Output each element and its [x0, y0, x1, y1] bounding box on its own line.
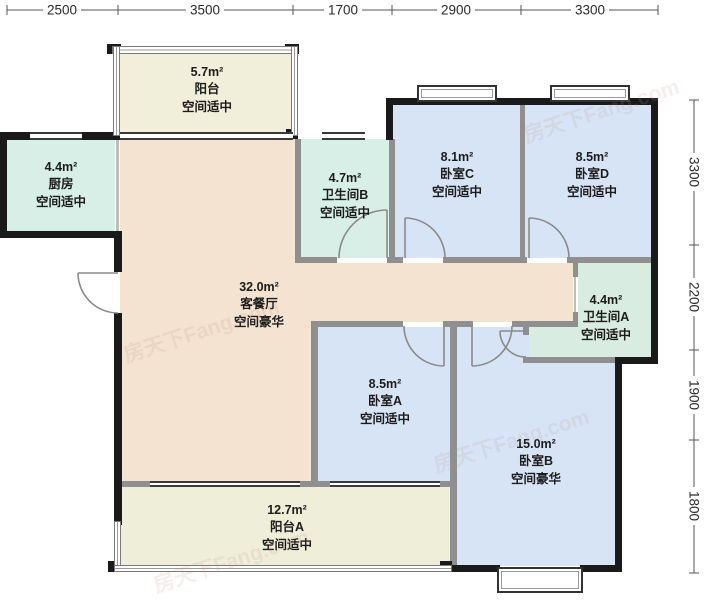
room-label-bedroom-d: 8.5m² 卧室D 空间适中 [567, 149, 617, 201]
room-area: 8.1m² [432, 149, 482, 166]
room-area: 4.7m² [320, 170, 370, 187]
room-quality: 空间适中 [182, 99, 232, 116]
room-name: 客餐厅 [234, 296, 284, 313]
room-quality: 空间豪华 [511, 471, 561, 488]
room-label-bathroom-a: 4.4m² 卫生间A 空间适中 [581, 292, 631, 344]
dimension-label: 2500 [43, 3, 81, 18]
room-quality: 空间适中 [360, 411, 410, 428]
room-area: 32.0m² [234, 279, 284, 296]
room-area: 5.7m² [182, 64, 232, 81]
room-name: 卧室D [567, 166, 617, 183]
bedroom-b-door-arc [472, 326, 512, 366]
dimension-label: 2200 [687, 278, 702, 316]
room-label-bedroom-c: 8.1m² 卧室C 空间适中 [432, 149, 482, 201]
room-name: 卫生间B [320, 187, 370, 204]
dimension-label: 3500 [186, 3, 224, 18]
bedroom-d-door-arc [529, 218, 569, 258]
dimension-label: 1800 [687, 487, 702, 525]
entry-door-arc [78, 273, 118, 313]
room-quality: 空间适中 [581, 327, 631, 344]
bathroom-a-door-arc [500, 331, 526, 357]
dimension-label: 3300 [571, 3, 609, 18]
room-area: 8.5m² [567, 149, 617, 166]
room-area: 12.7m² [262, 502, 312, 519]
room-quality: 空间适中 [567, 184, 617, 201]
room-name: 卧室A [360, 393, 410, 410]
dimension-label: 1900 [687, 376, 702, 414]
room-quality: 空间适中 [432, 184, 482, 201]
bedroom-a-door-arc [404, 326, 444, 366]
dimension-label: 2900 [437, 3, 475, 18]
room-label-kitchen: 4.4m² 厨房 空间适中 [36, 159, 86, 211]
room-name: 阳台A [262, 519, 312, 536]
room-name: 卧室C [432, 166, 482, 183]
room-quality: 空间适中 [262, 537, 312, 554]
room-quality: 空间适中 [36, 194, 86, 211]
room-label-bedroom-a: 8.5m² 卧室A 空间适中 [360, 376, 410, 428]
room-area: 4.4m² [581, 292, 631, 309]
room-label-balcony-top: 5.7m² 阳台 空间适中 [182, 64, 232, 116]
room-area: 15.0m² [511, 436, 561, 453]
room-quality: 空间豪华 [234, 314, 284, 331]
bedroom-c-door-arc [405, 218, 445, 258]
room-name: 厨房 [36, 176, 86, 193]
dimension-label: 1700 [324, 3, 362, 18]
room-name: 卫生间A [581, 309, 631, 326]
room-name: 卧室B [511, 453, 561, 470]
room-label-bathroom-b: 4.7m² 卫生间B 空间适中 [320, 170, 370, 222]
room-name: 阳台 [182, 81, 232, 98]
dimension-label: 3300 [687, 153, 702, 191]
room-label-living: 32.0m² 客餐厅 空间豪华 [234, 279, 284, 331]
room-label-bedroom-b: 15.0m² 卧室B 空间豪华 [511, 436, 561, 488]
room-label-balcony-a: 12.7m² 阳台A 空间适中 [262, 502, 312, 554]
room-quality: 空间适中 [320, 205, 370, 222]
room-area: 4.4m² [36, 159, 86, 176]
floor-plan: 2500 3500 1700 2900 3300 3300 2200 1900 … [0, 0, 711, 600]
room-area: 8.5m² [360, 376, 410, 393]
